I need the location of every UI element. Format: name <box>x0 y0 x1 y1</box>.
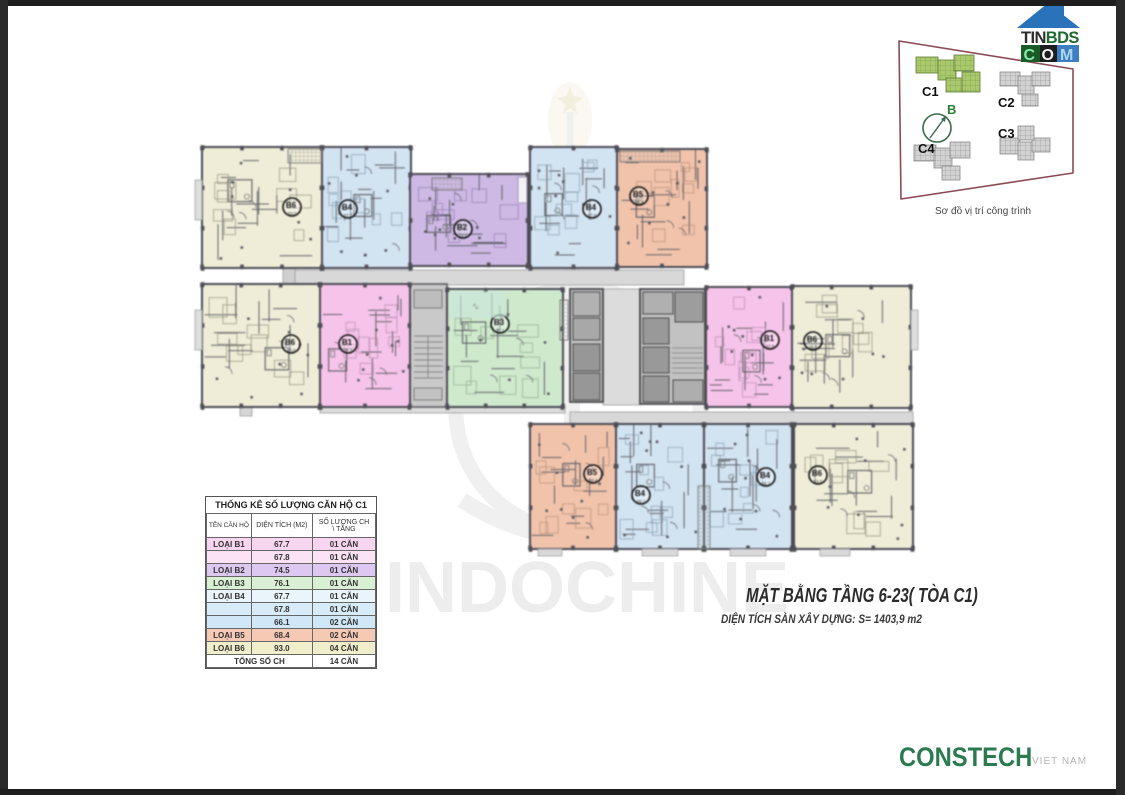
svg-text:B2: B2 <box>457 223 468 232</box>
svg-text:68.4: 68.4 <box>635 200 644 205</box>
svg-text:76.1: 76.1 <box>496 328 505 333</box>
svg-text:B6: B6 <box>286 201 297 210</box>
svg-text:B: B <box>947 102 956 117</box>
svg-text:66.1: 66.1 <box>637 499 646 504</box>
svg-text:B4: B4 <box>760 471 771 480</box>
svg-text:66.1: 66.1 <box>762 481 771 486</box>
svg-text:93.0: 93.0 <box>809 345 818 350</box>
svg-text:O: O <box>1042 47 1054 64</box>
svg-text:B5: B5 <box>587 468 598 477</box>
svg-text:M: M <box>1060 47 1073 64</box>
svg-text:B6: B6 <box>807 335 818 344</box>
svg-text:B1: B1 <box>764 334 775 343</box>
svg-text:74.5: 74.5 <box>459 233 468 238</box>
svg-text:C: C <box>1024 47 1036 64</box>
svg-text:TINBDS: TINBDS <box>1021 29 1079 47</box>
svg-text:B4: B4 <box>586 203 597 212</box>
svg-text:B6: B6 <box>812 469 823 478</box>
svg-text:93.0: 93.0 <box>814 479 823 484</box>
svg-text:67.7: 67.7 <box>344 348 353 353</box>
svg-text:C4: C4 <box>918 141 935 156</box>
svg-text:B1: B1 <box>342 338 353 347</box>
svg-text:B4: B4 <box>635 489 646 498</box>
svg-text:B6: B6 <box>285 338 296 347</box>
svg-text:67.7: 67.7 <box>344 213 353 218</box>
svg-text:67.8: 67.8 <box>766 344 775 349</box>
svg-text:B3: B3 <box>494 318 505 327</box>
svg-text:93.0: 93.0 <box>287 348 296 353</box>
svg-text:B4: B4 <box>342 203 353 212</box>
svg-text:67.8: 67.8 <box>588 213 597 218</box>
svg-text:B5: B5 <box>633 190 644 199</box>
svg-text:93.0: 93.0 <box>288 211 297 216</box>
svg-text:C1: C1 <box>922 84 939 99</box>
svg-text:68.4: 68.4 <box>589 478 598 483</box>
svg-text:C3: C3 <box>998 126 1015 141</box>
svg-text:C2: C2 <box>998 95 1015 110</box>
